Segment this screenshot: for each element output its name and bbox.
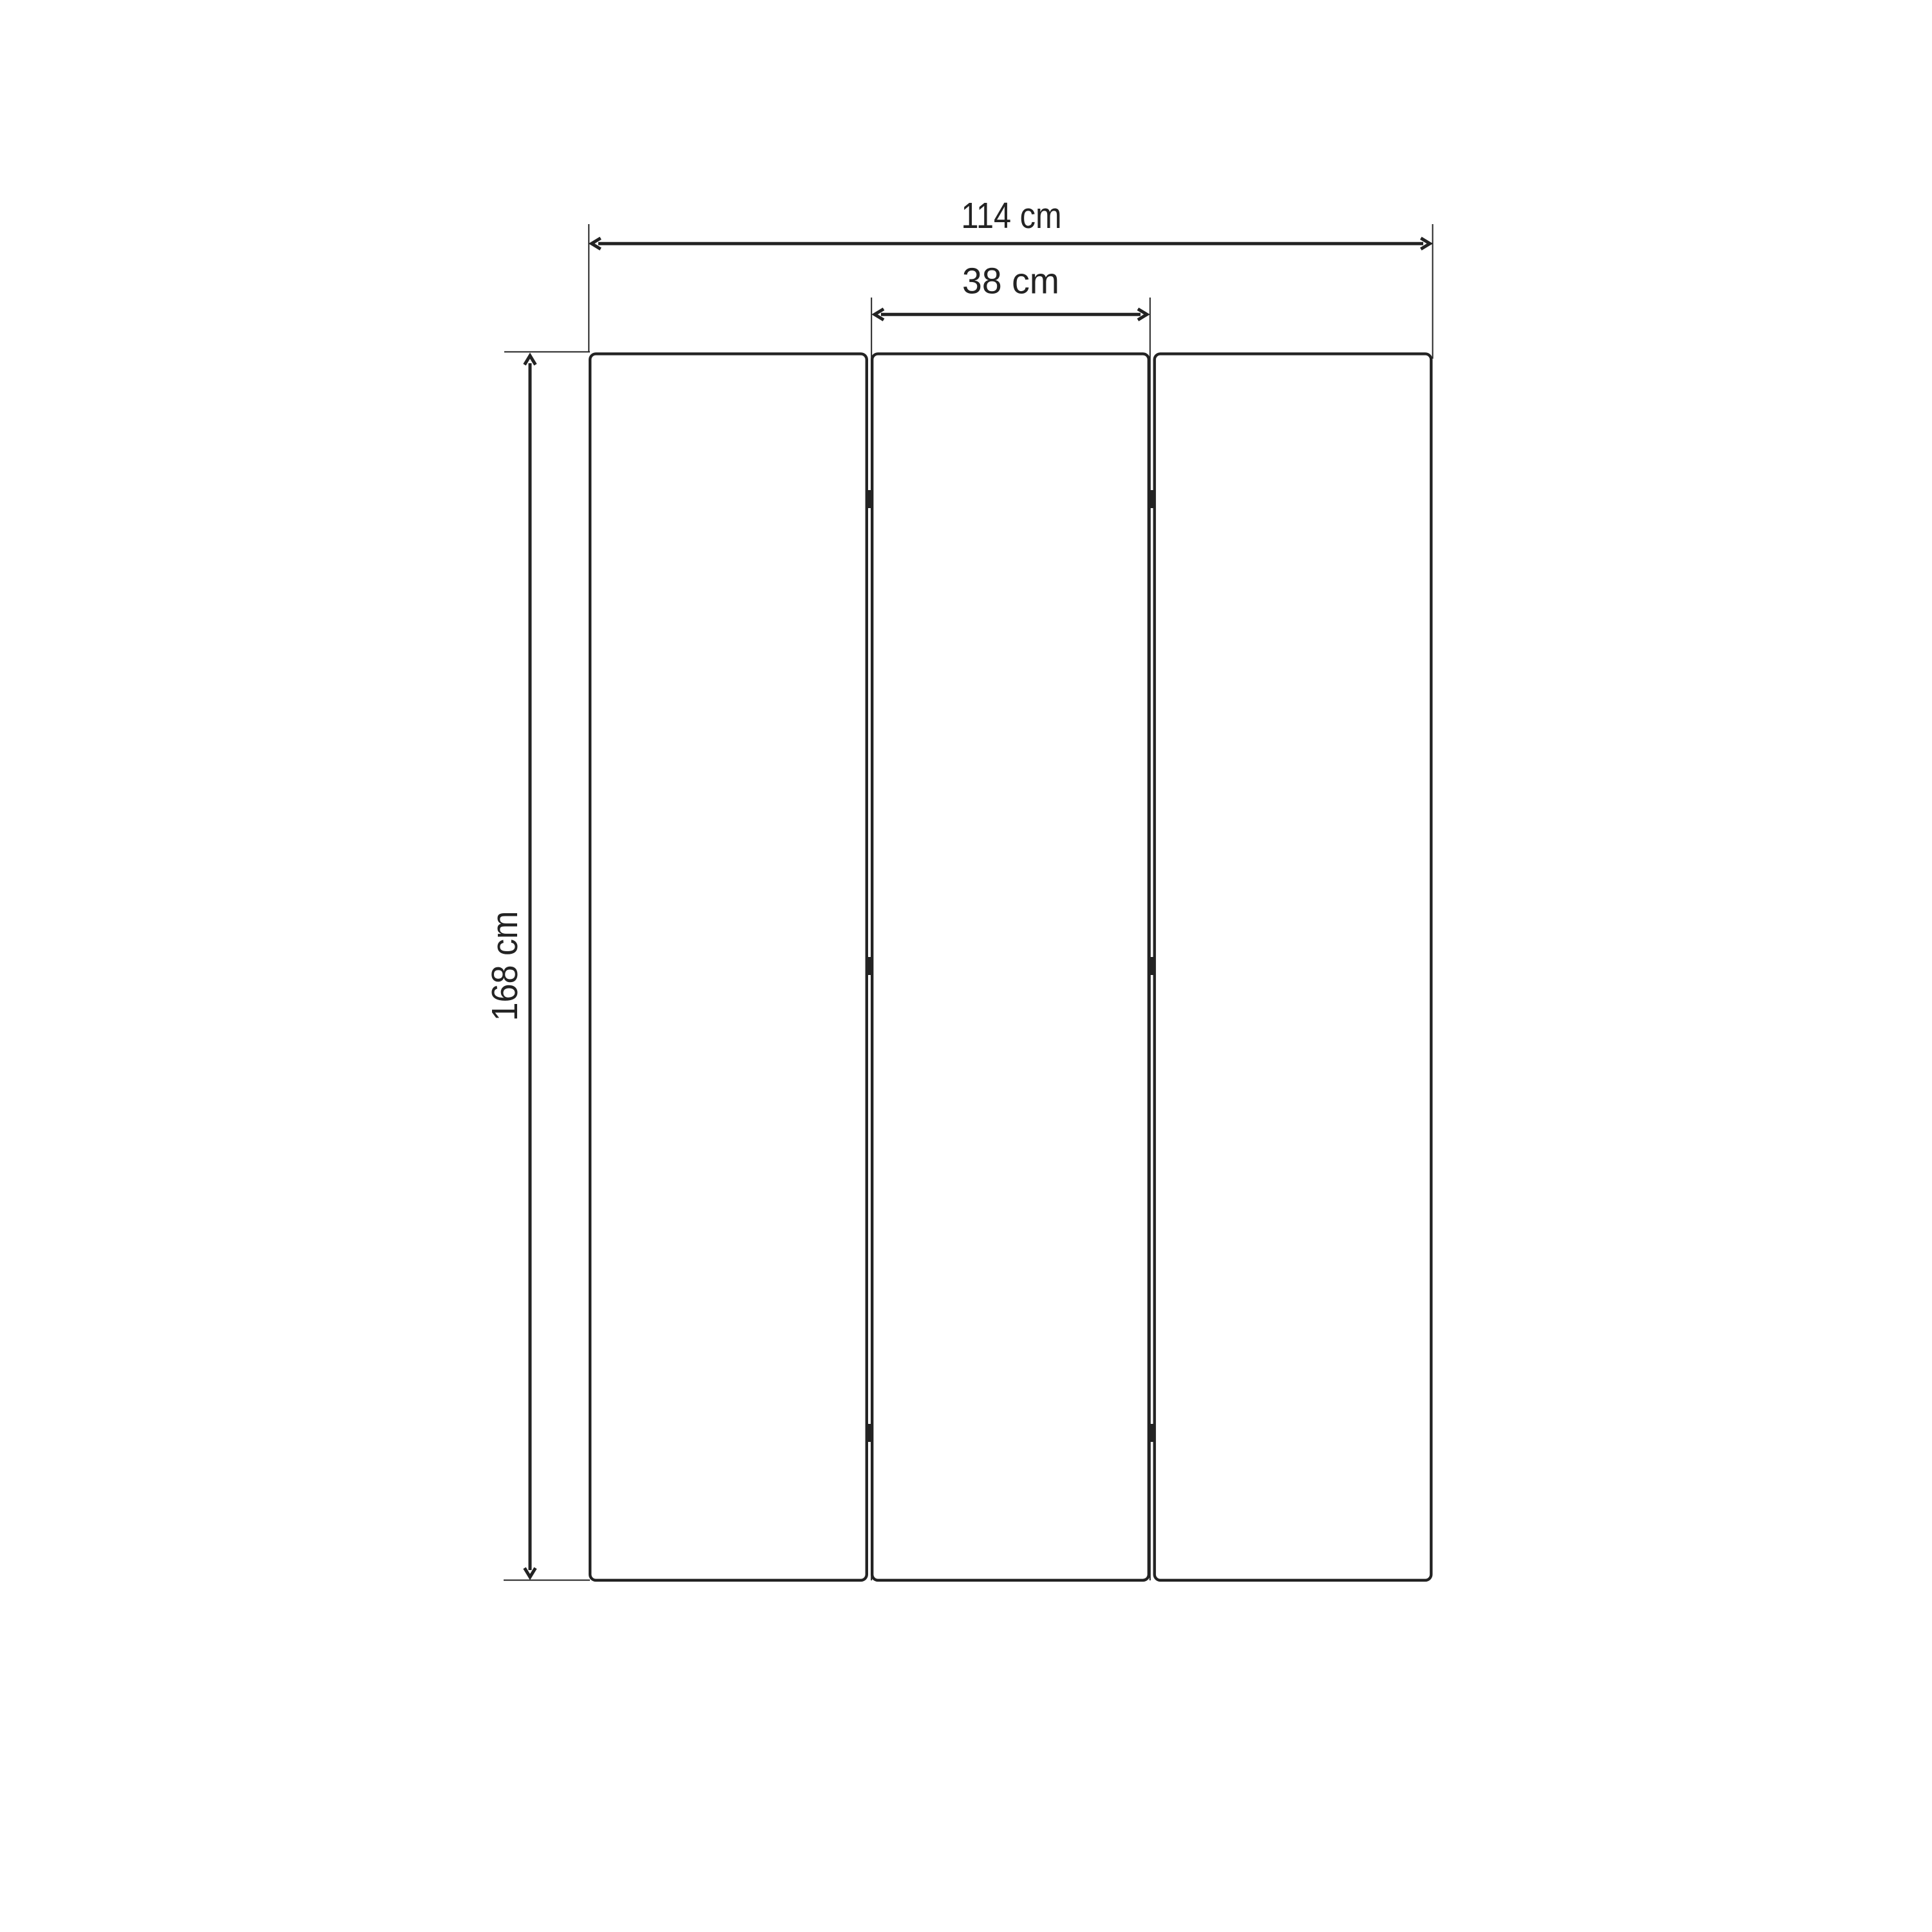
svg-text:168 cm: 168 cm (484, 911, 526, 1021)
svg-text:114 cm: 114 cm (961, 195, 1062, 236)
svg-text:38 cm: 38 cm (962, 261, 1059, 302)
